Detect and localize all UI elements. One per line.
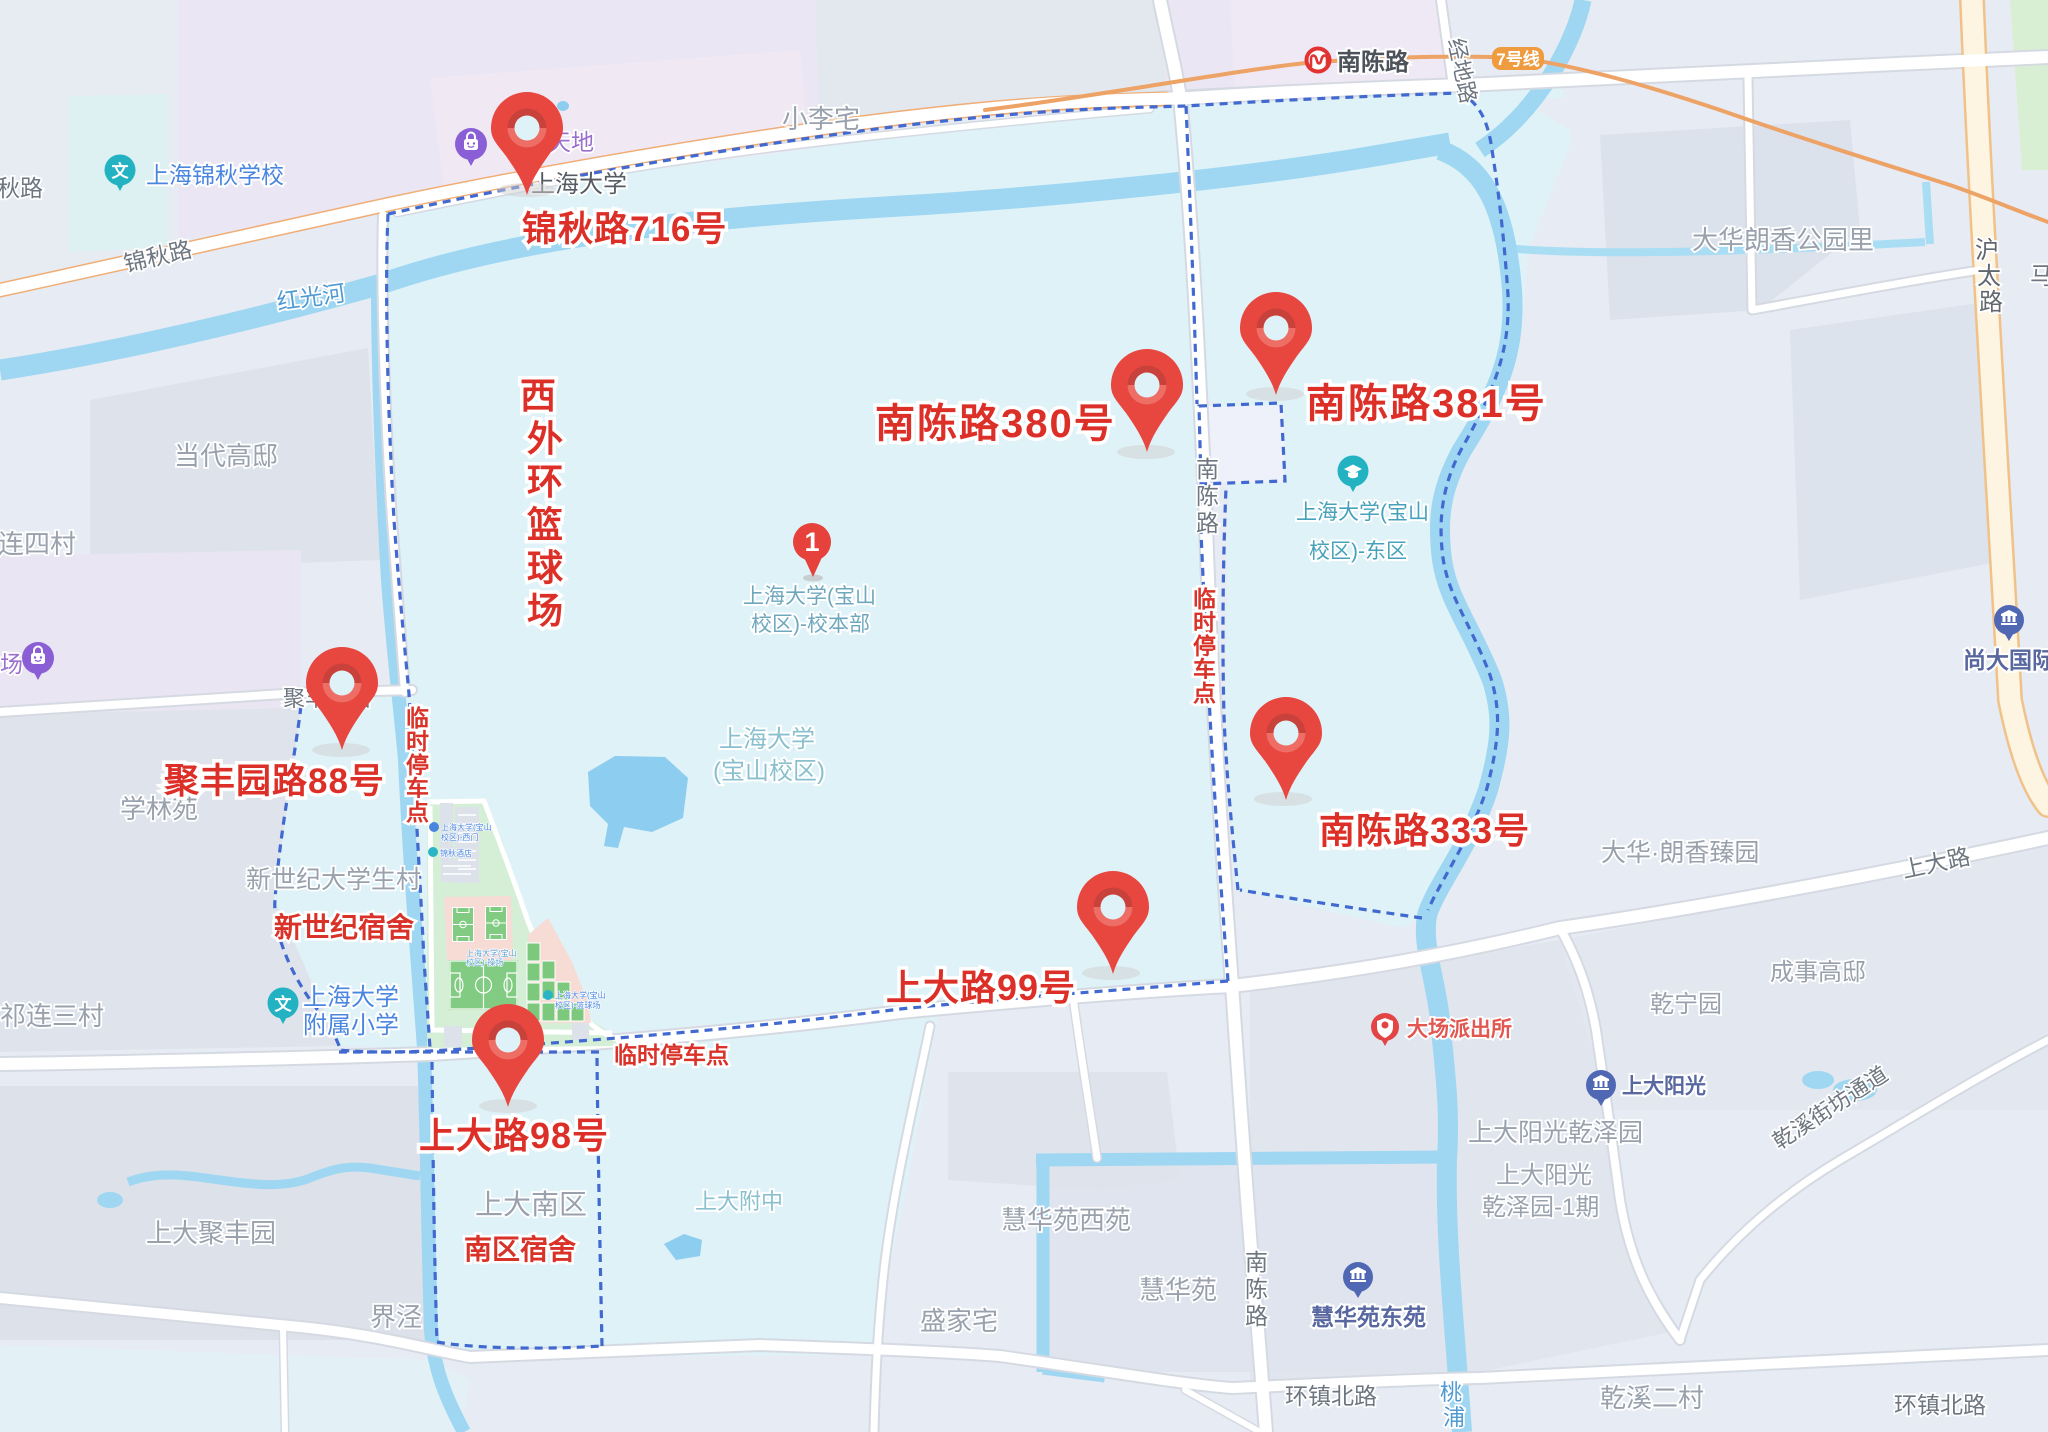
svg-text:小李宅: 小李宅 [782, 104, 860, 134]
svg-text:上海大学: 上海大学 [719, 726, 815, 753]
svg-text:上大阳光: 上大阳光 [1496, 1162, 1592, 1189]
svg-text:南陈路333号: 南陈路333号 [1319, 810, 1530, 851]
svg-text:环镇北路: 环镇北路 [1894, 1392, 1986, 1418]
svg-text:南区宿舍: 南区宿舍 [464, 1233, 576, 1265]
svg-text:尚大国际: 尚大国际 [1963, 647, 2048, 673]
svg-text:大华朗香公园里: 大华朗香公园里 [1692, 225, 1874, 255]
svg-text:临时停车点: 临时停车点 [406, 705, 429, 825]
svg-text:(宝山校区): (宝山校区) [713, 758, 825, 785]
svg-text:祁连四村: 祁连四村 [0, 529, 76, 559]
svg-text:大华·朗香臻园: 大华·朗香臻园 [1601, 839, 1759, 867]
svg-text:临时停车点: 临时停车点 [1193, 586, 1216, 706]
svg-text:桃浦: 桃浦 [1440, 1380, 1465, 1430]
svg-text:祁连三村: 祁连三村 [0, 1001, 104, 1031]
svg-text:环镇北路: 环镇北路 [1285, 1383, 1377, 1409]
svg-text:校区)-西门: 校区)-西门 [441, 832, 478, 842]
svg-text:上海大学(宝山: 上海大学(宝山 [1296, 501, 1429, 524]
svg-text:南陈路380号: 南陈路380号 [875, 402, 1116, 446]
svg-text:上大聚丰园: 上大聚丰园 [146, 1218, 276, 1248]
svg-text:上大附中: 上大附中 [695, 1189, 783, 1214]
svg-text:校区)-校本部: 校区)-校本部 [751, 613, 870, 636]
svg-text:上大路98号: 上大路98号 [419, 1115, 609, 1156]
svg-text:上海大学(宝山: 上海大学(宝山 [441, 822, 492, 832]
svg-text:南陈路: 南陈路 [1337, 48, 1410, 76]
svg-text:沪太路: 沪太路 [1975, 237, 2003, 316]
svg-text:聚丰园路88号: 聚丰园路88号 [163, 762, 385, 801]
svg-text:上海大学(宝山: 上海大学(宝山 [743, 585, 876, 608]
svg-text:上海大学: 上海大学 [303, 984, 399, 1011]
svg-text:7号线: 7号线 [1496, 49, 1539, 69]
svg-text:南陈路: 南陈路 [1245, 1249, 1268, 1329]
svg-text:锦秋路: 锦秋路 [0, 175, 43, 201]
svg-text:大场派出所: 大场派出所 [1407, 1018, 1512, 1041]
svg-text:校区)-操场: 校区)-操场 [466, 957, 503, 967]
svg-text:当代高邸: 当代高邸 [174, 441, 278, 471]
svg-text:界泾: 界泾 [370, 1302, 422, 1332]
svg-text:上大阳光乾泽园: 上大阳光乾泽园 [1468, 1119, 1643, 1147]
svg-text:南陈路381号: 南陈路381号 [1306, 382, 1547, 426]
svg-text:盛家宅: 盛家宅 [920, 1306, 998, 1336]
svg-text:上海大学(宝山: 上海大学(宝山 [466, 948, 517, 958]
svg-text:上大南区: 上大南区 [475, 1189, 587, 1220]
svg-text:上大路99号: 上大路99号 [886, 967, 1076, 1008]
svg-text:临时停车点: 临时停车点 [614, 1042, 729, 1068]
svg-text:乾溪二村: 乾溪二村 [1600, 1383, 1704, 1413]
svg-text:校区)-东区: 校区)-东区 [1309, 540, 1407, 563]
svg-text:慧华苑西苑: 慧华苑西苑 [1001, 1205, 1131, 1235]
svg-text:上海锦秋学校: 上海锦秋学校 [146, 162, 284, 188]
svg-text:成事高邸: 成事高邸 [1770, 959, 1866, 986]
svg-text:附属小学: 附属小学 [303, 1012, 399, 1039]
svg-text:乾泽园-1期: 乾泽园-1期 [1482, 1194, 1599, 1221]
svg-text:校区)-篮球场: 校区)-篮球场 [555, 1000, 600, 1010]
svg-text:锦秋酒店: 锦秋酒店 [440, 848, 472, 858]
svg-text:上海大学(宝山: 上海大学(宝山 [555, 990, 606, 1000]
svg-text:1: 1 [804, 527, 819, 557]
svg-text:新世纪大学生村: 新世纪大学生村 [246, 866, 421, 894]
svg-text:乾宁园: 乾宁园 [1650, 991, 1722, 1018]
svg-text:慧华苑东苑: 慧华苑东苑 [1311, 1304, 1426, 1330]
svg-text:慧华苑: 慧华苑 [1139, 1275, 1217, 1305]
svg-text:南陈路: 南陈路 [1196, 456, 1219, 536]
svg-text:新世纪宿舍: 新世纪宿舍 [274, 911, 414, 943]
svg-text:锦秋路716号: 锦秋路716号 [522, 210, 727, 249]
svg-text:场: 场 [0, 651, 23, 677]
svg-text:上大阳光: 上大阳光 [1622, 1075, 1706, 1098]
svg-text:马: 马 [2030, 263, 2048, 290]
